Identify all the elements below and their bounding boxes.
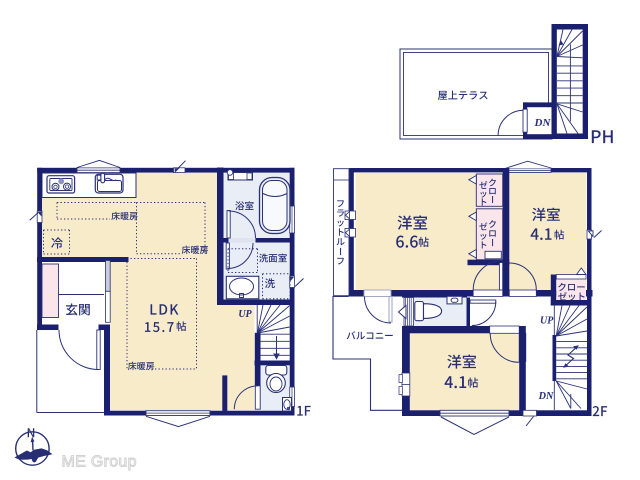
svg-text:DN: DN	[534, 117, 552, 129]
svg-text:UP: UP	[540, 316, 554, 327]
svg-text:DN: DN	[538, 391, 554, 402]
svg-text:ME Group: ME Group	[62, 454, 137, 471]
svg-text:UP: UP	[238, 309, 252, 320]
